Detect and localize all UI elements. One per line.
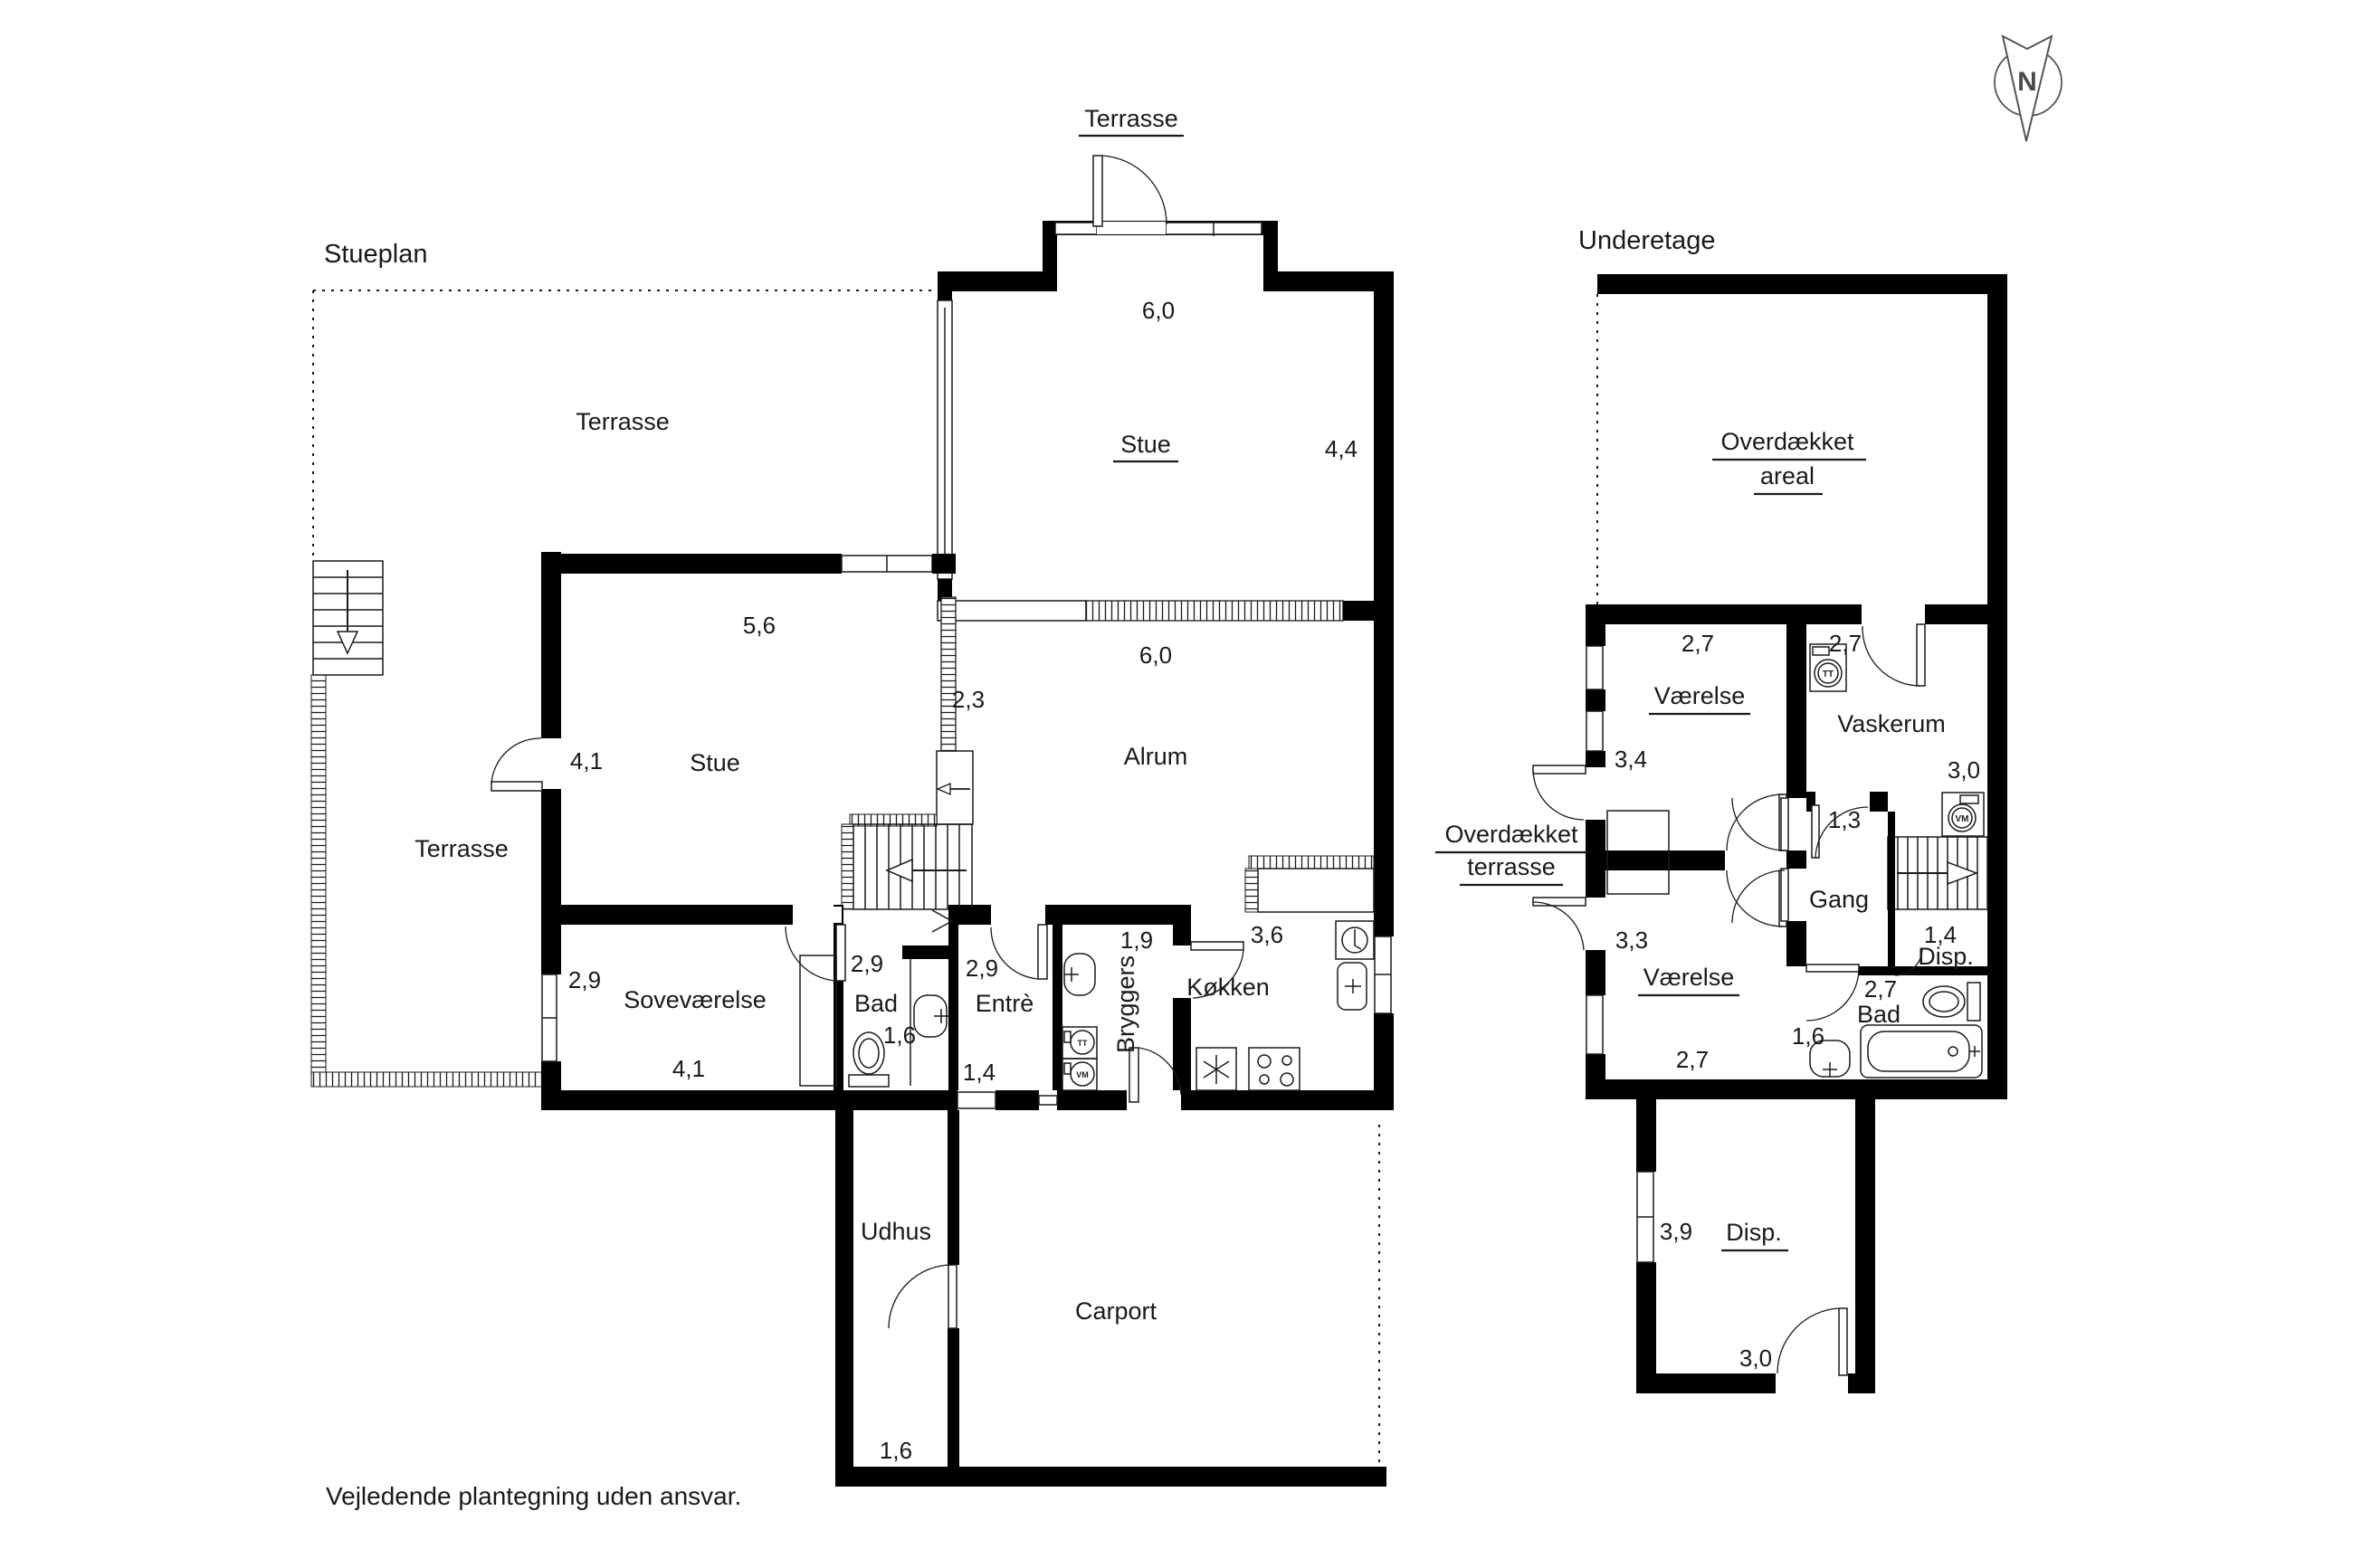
- deck-edge-bottom: [311, 1072, 543, 1087]
- dim: 3,6: [1251, 921, 1283, 948]
- label-ov-terrasse-2: terrasse: [1467, 853, 1556, 880]
- wall: [1343, 601, 1374, 621]
- label-terrasse-big: Terrasse: [576, 408, 670, 435]
- wall: [995, 1090, 1039, 1110]
- stueplan-title: Stueplan: [324, 240, 428, 269]
- dryer-label: TT: [1823, 670, 1834, 679]
- wall: [835, 1467, 1386, 1487]
- label-stue-upper: Stue: [1120, 431, 1171, 458]
- wall: [1597, 274, 2007, 294]
- label-ov-areal-2: areal: [1760, 462, 1815, 489]
- window: [1586, 995, 1603, 1054]
- label-vaskerum: Vaskerum: [1837, 710, 1946, 737]
- label-stue: Stue: [690, 749, 740, 776]
- wall: [1173, 925, 1191, 946]
- dim: 3,3: [1615, 927, 1648, 954]
- wall: [1848, 1373, 1875, 1393]
- wall: [1855, 1099, 1875, 1393]
- wall: [948, 1328, 959, 1467]
- wall: [1636, 1099, 1656, 1172]
- dim: 5,6: [743, 612, 776, 639]
- dim: 1,6: [880, 1437, 912, 1464]
- wall: [938, 271, 1043, 291]
- wall: [1786, 921, 1806, 966]
- wall: [948, 905, 991, 925]
- dim: 1,3: [1828, 806, 1861, 833]
- dim: 1,6: [1792, 1022, 1824, 1050]
- wall: [1053, 925, 1062, 1090]
- wall: [948, 925, 958, 1090]
- wall: [1374, 271, 1394, 936]
- wall: [902, 946, 948, 959]
- dim: 6,0: [1142, 297, 1175, 324]
- counter-hatch: [1249, 856, 1374, 869]
- label-vaerelse2: Værelse: [1643, 964, 1735, 991]
- dim: 1,6: [883, 1022, 916, 1049]
- dim: 3,0: [1739, 1345, 1772, 1372]
- glazed-partition: [1086, 601, 1343, 621]
- wall: [1786, 624, 1806, 798]
- wall: [1987, 274, 2007, 1099]
- dim: 2,7: [1681, 630, 1714, 657]
- dim: 1,4: [963, 1059, 995, 1086]
- underetage-title: Underetage: [1578, 226, 1716, 255]
- sill: [938, 601, 1086, 621]
- label-sovevaerelse: Soveværelse: [624, 986, 767, 1013]
- wall: [541, 554, 842, 574]
- wall: [1586, 950, 1605, 995]
- window: [1586, 646, 1603, 689]
- wall: [541, 552, 561, 738]
- dim: 3,9: [1660, 1218, 1692, 1245]
- washer-label: VM: [1076, 1070, 1089, 1079]
- floorplan-page: N Stueplan: [0, 0, 2353, 1568]
- floorplan-drawing: N Stueplan: [0, 0, 2353, 1568]
- wall: [932, 554, 956, 574]
- label-terrasse-left: Terrasse: [414, 835, 509, 862]
- wall: [1586, 751, 1605, 767]
- wall: [1586, 1054, 1605, 1099]
- wall: [541, 1090, 957, 1110]
- north-letter: N: [2017, 67, 2037, 97]
- wall: [1263, 221, 1278, 291]
- label-ov-areal-1: Overdækket: [1720, 428, 1854, 455]
- label-carport: Carport: [1075, 1297, 1157, 1325]
- window-entre: [957, 1092, 995, 1108]
- label-ov-terrasse-1: Overdækket: [1444, 821, 1578, 848]
- dim: 4,1: [570, 747, 603, 774]
- dim: 2,7: [1864, 975, 1897, 1003]
- dim: 2,9: [851, 950, 883, 977]
- dim: 4,1: [672, 1055, 705, 1082]
- label-entre: Entrè: [976, 990, 1034, 1017]
- wall: [1586, 1079, 2007, 1099]
- dim: 2,7: [1829, 630, 1862, 657]
- dim: 2,9: [568, 966, 601, 993]
- label-gang: Gang: [1809, 886, 1869, 913]
- dim: 3,0: [1948, 756, 1980, 784]
- dim: 1,9: [1120, 927, 1153, 954]
- wall: [1173, 998, 1191, 1090]
- wall: [1925, 604, 1987, 624]
- dim: 2,3: [952, 686, 985, 713]
- label-alrum: Alrum: [1124, 743, 1188, 770]
- dim: 4,4: [1325, 435, 1357, 462]
- dryer-label: TT: [1078, 1039, 1088, 1048]
- wall: [1636, 1373, 1776, 1393]
- counter-hatch: [1245, 869, 1258, 912]
- label-kokken: Køkken: [1186, 974, 1270, 1001]
- wall: [1045, 905, 1191, 925]
- wall: [541, 789, 561, 974]
- window: [1586, 711, 1603, 751]
- window: [1055, 223, 1097, 234]
- wall: [835, 1110, 853, 1467]
- label-bad2: Bad: [1857, 1001, 1900, 1028]
- label-vaerelse1: Værelse: [1654, 682, 1746, 709]
- dim: 2,9: [966, 955, 998, 982]
- wall: [1586, 689, 1605, 711]
- label-bad: Bad: [854, 990, 898, 1017]
- label-udhus: Udhus: [861, 1218, 931, 1245]
- label-bryggers: Bryggers: [1112, 955, 1139, 1053]
- dim: 6,0: [1139, 641, 1172, 669]
- wall: [1181, 1090, 1394, 1110]
- dim: 3,4: [1615, 746, 1647, 773]
- washer-label: VM: [1956, 814, 1969, 824]
- wall: [1057, 1090, 1127, 1110]
- wall: [1786, 851, 1806, 869]
- deck-edge-left: [311, 675, 326, 1086]
- wall: [1870, 792, 1888, 812]
- vent: [1039, 1096, 1057, 1105]
- wall: [541, 905, 793, 925]
- wall: [1586, 604, 1862, 624]
- internal-window-band: [941, 597, 956, 751]
- footer-disclaimer: Vejledende plantegning uden ansvar.: [326, 1482, 741, 1510]
- dim: 2,7: [1676, 1046, 1709, 1073]
- label-disp-small: Disp.: [1918, 943, 1974, 970]
- label-disp: Disp.: [1726, 1219, 1782, 1246]
- wall: [1586, 851, 1725, 870]
- wall: [948, 1110, 959, 1265]
- wall: [1586, 624, 1605, 646]
- label-terrasse-top: Terrasse: [1084, 105, 1178, 132]
